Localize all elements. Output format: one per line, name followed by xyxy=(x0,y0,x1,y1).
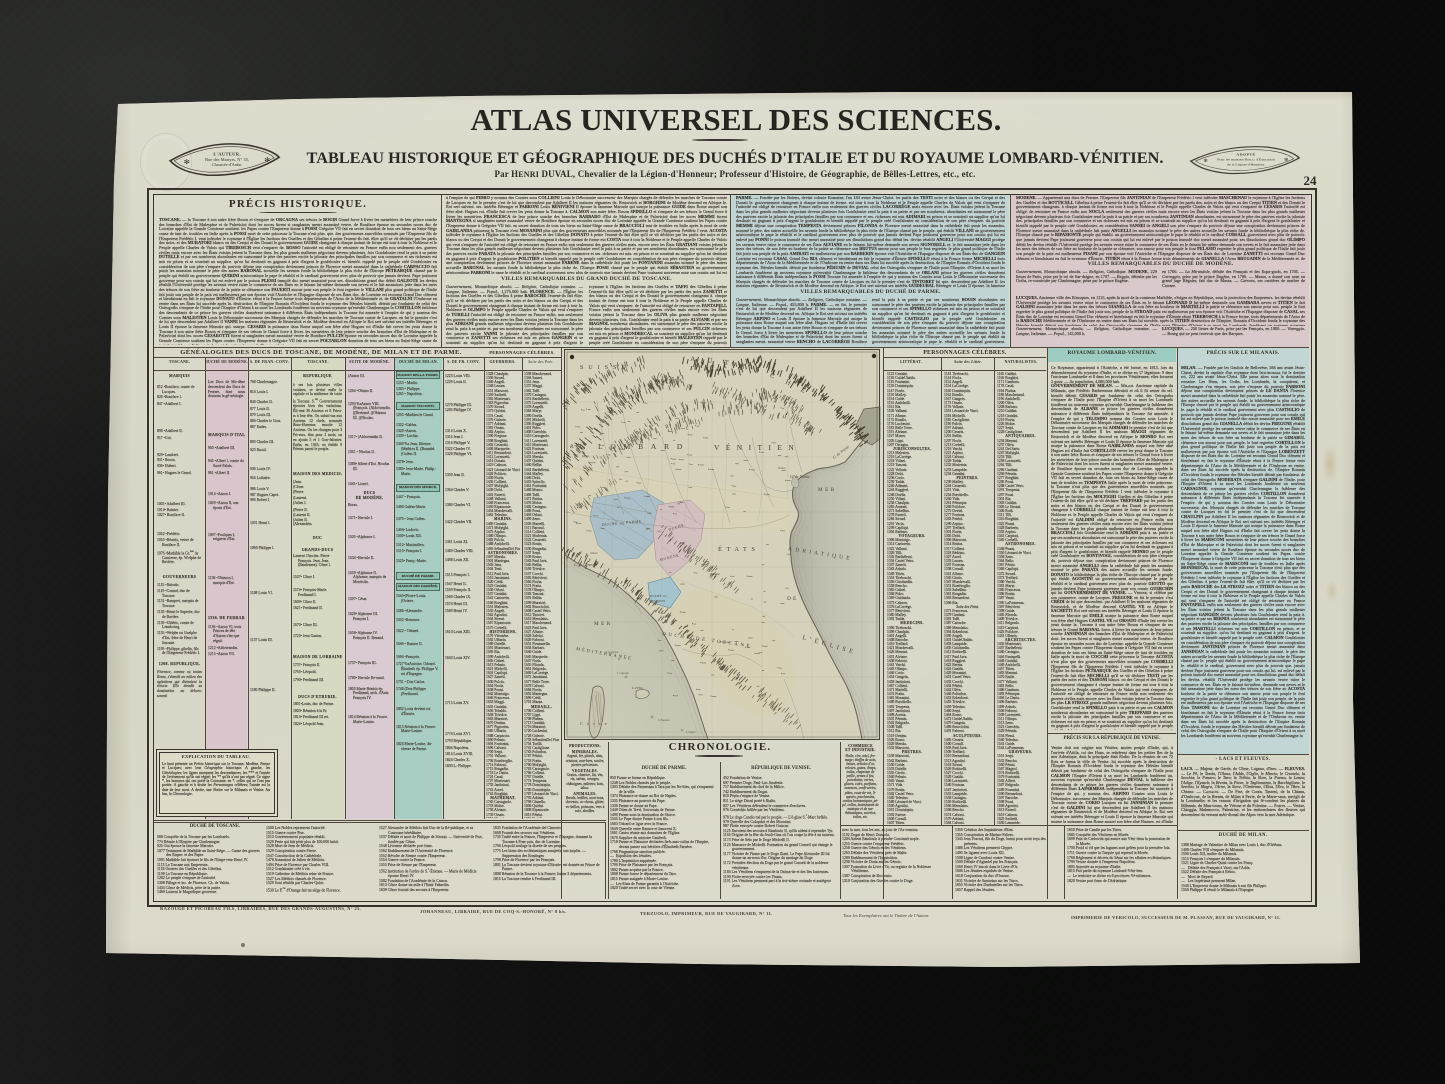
svg-text:SUISSE: SUISSE xyxy=(580,365,630,371)
svg-text:G. de Venise: G. de Venise xyxy=(790,474,810,479)
svg-text:ÉTATS: ÉTATS xyxy=(718,545,759,553)
svg-text:ADOPTÉ: ADOPTÉ xyxy=(1236,152,1256,156)
svg-text:DUCHÉ DE: DUCHÉ DE xyxy=(650,594,667,598)
svg-text:Rue des Martyrs, N° 35,: Rue des Martyrs, N° 35, xyxy=(205,157,249,163)
svg-text:DE: DE xyxy=(787,596,798,602)
svg-text:de la Légion-d'Honneur.: de la Légion-d'Honneur. xyxy=(1227,163,1265,167)
svg-text:DE: DE xyxy=(680,541,685,545)
svg-text:Pour les maisons Roy.les d'Édu: Pour les maisons Roy.les d'Éducation xyxy=(1217,157,1275,161)
svg-text:C o r s e: C o r s e xyxy=(580,721,608,726)
svg-text:G. de Gênes: G. de Gênes xyxy=(574,563,593,567)
svg-text:LUCQUES: LUCQUES xyxy=(650,599,666,603)
svg-text:I. d’Elbe: I. d’Elbe xyxy=(631,686,644,690)
svg-text:I. Gorgona: I. Gorgona xyxy=(605,651,619,654)
svg-text:✻: ✻ xyxy=(264,156,270,163)
svg-text:VÉNITIEN: VÉNITIEN xyxy=(714,442,800,452)
svg-text:Gênes: Gênes xyxy=(590,551,598,555)
svg-text:✻: ✻ xyxy=(1284,157,1289,162)
svg-text:I. Capraja: I. Capraja xyxy=(616,672,629,675)
svg-text:MER: MER xyxy=(594,621,613,627)
svg-text:✻: ✻ xyxy=(1203,158,1208,163)
svg-text:Venise: Venise xyxy=(778,466,786,470)
svg-text:I. Pianosa: I. Pianosa xyxy=(657,719,670,722)
svg-text:✻: ✻ xyxy=(184,158,190,165)
svg-text:Milan: Milan xyxy=(581,454,590,458)
svg-text:I. Giglio: I. Giglio xyxy=(685,731,696,734)
svg-text:MER: MER xyxy=(818,487,837,493)
svg-text:L'AUTEUR,: L'AUTEUR, xyxy=(213,152,240,157)
svg-text:Chaussée-d'Antin.: Chaussée-d'Antin. xyxy=(212,163,242,167)
svg-text:Florence: Florence xyxy=(719,640,731,644)
svg-text:LOMBARD: LOMBARD xyxy=(598,442,690,451)
svg-text:Bologne: Bologne xyxy=(710,572,721,576)
